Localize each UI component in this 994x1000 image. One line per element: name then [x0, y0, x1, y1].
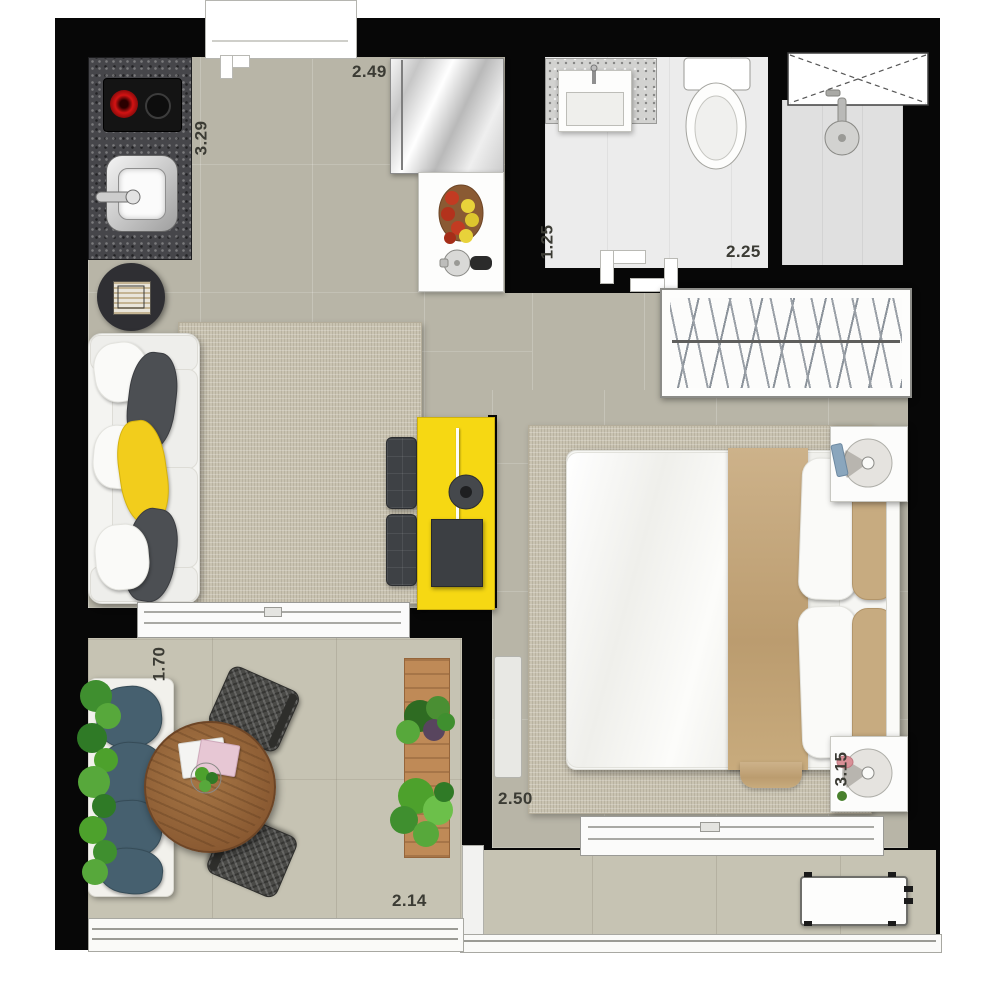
bed-throw-blanket [728, 448, 808, 770]
floor-plan: 3.29 2.49 1.25 2.25 1.70 2.50 2.14 3.15 [0, 0, 994, 1000]
bathroom-sink-basin [566, 92, 624, 126]
railing-line [464, 940, 936, 942]
dim-kitchen-width: 2.49 [352, 62, 387, 82]
magazine-pink [196, 739, 241, 777]
bathroom-door-jamb-2 [664, 258, 678, 292]
ac-foot [888, 921, 896, 926]
wardrobe-closet [660, 288, 912, 398]
service-balcony-railing [460, 934, 942, 953]
balcony-railing [88, 918, 464, 952]
sliding-door-handle [264, 607, 282, 617]
ac-pipe-connector [904, 886, 913, 892]
side-table-tray [113, 281, 151, 315]
wardrobe-hangers [670, 298, 902, 388]
pouf [386, 514, 417, 586]
bedroom-window-rail [588, 838, 874, 840]
kitchen-sink-basin [118, 168, 166, 220]
cooktop-burner-off [145, 93, 171, 119]
kitchen-island-counter [418, 172, 504, 292]
pouf [386, 437, 417, 509]
ac-condenser-unit [800, 876, 908, 926]
sliding-door-rail [144, 622, 401, 624]
entrance-threshold [212, 40, 348, 42]
dim-balcony-width: 2.14 [392, 891, 427, 911]
dim-bath-depth: 1.25 [537, 225, 557, 260]
ac-foot [804, 921, 812, 926]
entrance-door-jamb-2 [220, 55, 233, 79]
dim-bath-width: 2.25 [726, 242, 761, 262]
cooktop-burner-on [110, 90, 138, 118]
dim-bedroom-width: 2.50 [498, 789, 533, 809]
ac-foot [888, 872, 896, 877]
bedroom-window [580, 816, 884, 856]
media-box [431, 519, 483, 587]
bed-throw-drape [740, 762, 802, 788]
ac-pipe-connector [904, 898, 913, 904]
wardrobe-rail [672, 340, 900, 343]
shower-floor [782, 100, 903, 265]
dim-kitchen-length: 3.29 [191, 121, 211, 156]
entrance-area [205, 0, 357, 59]
bedroom-door-panel [494, 656, 522, 778]
bathroom-door-jamb [600, 250, 614, 284]
dim-balcony-depth: 1.70 [149, 647, 169, 682]
nightstand-top [830, 426, 908, 502]
railing-line [92, 928, 458, 930]
ac-foot [804, 872, 812, 877]
railing-line [92, 938, 458, 940]
window-slider-handle [700, 822, 720, 832]
bedroom-window-rail [588, 826, 874, 828]
refrigerator [390, 58, 504, 174]
plant-shelf [404, 658, 450, 858]
refrigerator-door-seam [401, 60, 403, 170]
balcony-divider-wall [462, 845, 484, 938]
dim-bedroom-length: 3.15 [831, 752, 851, 787]
